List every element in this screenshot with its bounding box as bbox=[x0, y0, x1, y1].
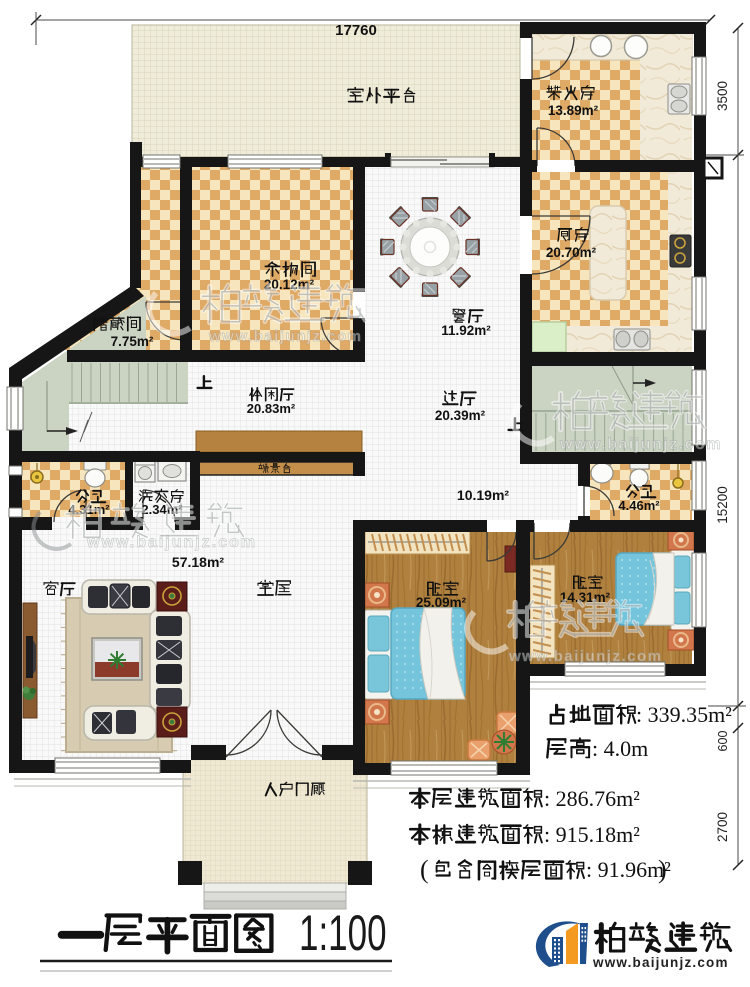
svg-text:www.baijunjz.com: www.baijunjz.com bbox=[559, 436, 722, 453]
svg-text:10.19m²: 10.19m² bbox=[457, 487, 509, 503]
svg-text:www.baijunjz.com: www.baijunjz.com bbox=[508, 648, 662, 665]
svg-text:13.89m²: 13.89m² bbox=[548, 103, 599, 118]
svg-text:17760: 17760 bbox=[335, 22, 377, 39]
svg-text:: 286.76m²: : 286.76m² bbox=[544, 786, 640, 811]
svg-text:57.18m²: 57.18m² bbox=[172, 554, 224, 570]
svg-text:20.70m²: 20.70m² bbox=[546, 245, 597, 260]
svg-text:1:100: 1:100 bbox=[299, 906, 387, 962]
svg-text:25.09m²: 25.09m² bbox=[416, 595, 467, 610]
svg-text:2700: 2700 bbox=[715, 812, 730, 842]
svg-text:11.92m²: 11.92m² bbox=[441, 323, 491, 338]
svg-text:7.75m²: 7.75m² bbox=[111, 334, 154, 349]
svg-text:www.baijunjz.com: www.baijunjz.com bbox=[208, 328, 362, 345]
svg-text:: 915.18m²: : 915.18m² bbox=[544, 822, 640, 847]
svg-text:: 4.0m: : 4.0m bbox=[592, 736, 648, 761]
svg-text:3500: 3500 bbox=[715, 81, 730, 111]
svg-text:20.39m²: 20.39m² bbox=[435, 408, 486, 423]
svg-text:4.46m²: 4.46m² bbox=[618, 498, 660, 513]
svg-text:15200: 15200 bbox=[715, 486, 730, 524]
svg-text:20.83m²: 20.83m² bbox=[247, 401, 296, 416]
svg-text:(: ( bbox=[420, 855, 429, 884]
svg-text:2.34m²: 2.34m² bbox=[141, 502, 183, 517]
svg-text:): ) bbox=[658, 855, 667, 884]
svg-text:www.baijunjz.com: www.baijunjz.com bbox=[86, 534, 257, 551]
svg-text:600: 600 bbox=[716, 731, 730, 752]
svg-text:www.baijunjz.com: www.baijunjz.com bbox=[592, 955, 729, 970]
